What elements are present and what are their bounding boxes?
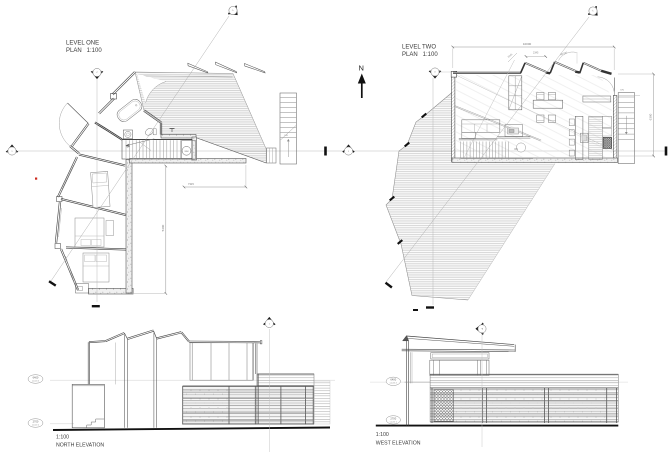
svg-text:2345: 2345 — [533, 52, 539, 55]
svg-text:Level 2: Level 2 — [390, 383, 398, 385]
svg-text:6400: 6400 — [390, 378, 396, 382]
svg-text:2700: 2700 — [33, 419, 39, 423]
svg-text:NORTH ELEVATION: NORTH ELEVATION — [56, 443, 104, 449]
svg-text:PLAN 1:100: PLAN 1:100 — [402, 52, 438, 58]
svg-text:2700: 2700 — [390, 416, 396, 420]
svg-text:16R: 16R — [284, 135, 288, 137]
svg-text:UP: UP — [127, 145, 131, 149]
svg-text:N: N — [359, 64, 364, 73]
svg-text:6400: 6400 — [33, 375, 39, 379]
svg-text:6360: 6360 — [649, 113, 653, 120]
svg-text:LEVEL ONE: LEVEL ONE — [66, 41, 99, 47]
svg-text:10000: 10000 — [523, 42, 532, 46]
svg-text:DN: DN — [621, 90, 625, 92]
svg-text:Level 1: Level 1 — [390, 421, 398, 423]
svg-text:WEST ELEVATION: WEST ELEVATION — [376, 441, 421, 447]
svg-text:WM: WM — [185, 151, 189, 153]
svg-text:Level 2: Level 2 — [32, 380, 40, 382]
svg-text:LEVEL TWO: LEVEL TWO — [402, 45, 436, 51]
svg-text:5400: 5400 — [161, 224, 165, 231]
svg-text:DN: DN — [515, 148, 519, 151]
svg-text:1:100: 1:100 — [376, 432, 389, 438]
svg-text:7315: 7315 — [188, 182, 194, 186]
svg-text:1:100: 1:100 — [56, 435, 69, 441]
svg-text:PLAN 1:100: PLAN 1:100 — [66, 48, 102, 54]
svg-text:Level 1: Level 1 — [32, 424, 40, 426]
